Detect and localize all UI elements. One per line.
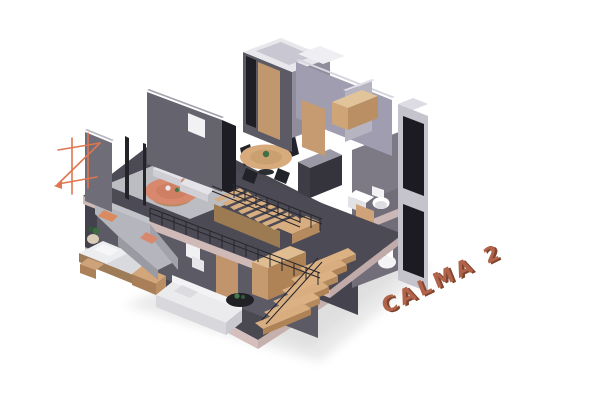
door-upper	[302, 100, 325, 156]
kitchen-island	[298, 149, 342, 198]
glass-pane-icon	[403, 116, 424, 196]
scene-canvas: CALMA 2 CALMA 2	[0, 0, 600, 400]
isometric-house-render: CALMA 2 CALMA 2	[0, 0, 600, 400]
upper-right-rooms	[296, 59, 395, 156]
coffee-table-lower	[226, 293, 254, 307]
window-column	[398, 98, 428, 292]
window-frame-icon	[125, 136, 129, 200]
